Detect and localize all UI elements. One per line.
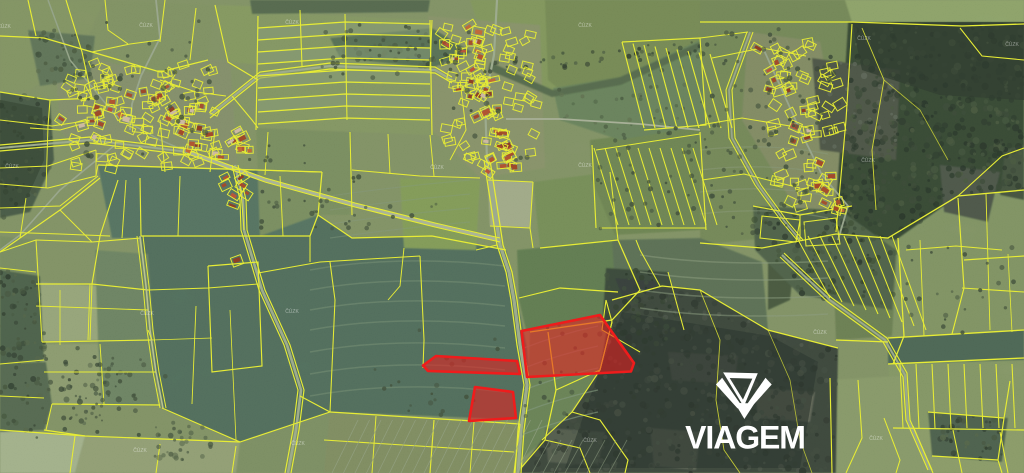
svg-text:ČÚZK: ČÚZK: [139, 22, 153, 29]
svg-text:ČÚZK: ČÚZK: [869, 435, 883, 442]
svg-text:ČÚZK: ČÚZK: [133, 447, 147, 454]
svg-text:ČÚZK: ČÚZK: [583, 437, 597, 444]
svg-text:VIAGEM: VIAGEM: [685, 420, 805, 456]
svg-text:ČÚZK: ČÚZK: [1005, 41, 1019, 48]
svg-text:ČÚZK: ČÚZK: [813, 329, 827, 336]
svg-text:ČÚZK: ČÚZK: [578, 22, 592, 29]
svg-text:ČÚZK: ČÚZK: [0, 23, 11, 30]
svg-text:ČÚZK: ČÚZK: [285, 308, 299, 315]
svg-text:ČÚZK: ČÚZK: [140, 310, 154, 317]
svg-text:ČÚZK: ČÚZK: [861, 157, 875, 164]
svg-text:ČÚZK: ČÚZK: [5, 163, 19, 170]
svg-text:ČÚZK: ČÚZK: [291, 440, 305, 447]
svg-text:ČÚZK: ČÚZK: [285, 19, 299, 26]
svg-text:ČÚZK: ČÚZK: [578, 162, 592, 169]
svg-text:ČÚZK: ČÚZK: [857, 35, 871, 42]
svg-text:ČÚZK: ČÚZK: [430, 164, 444, 171]
